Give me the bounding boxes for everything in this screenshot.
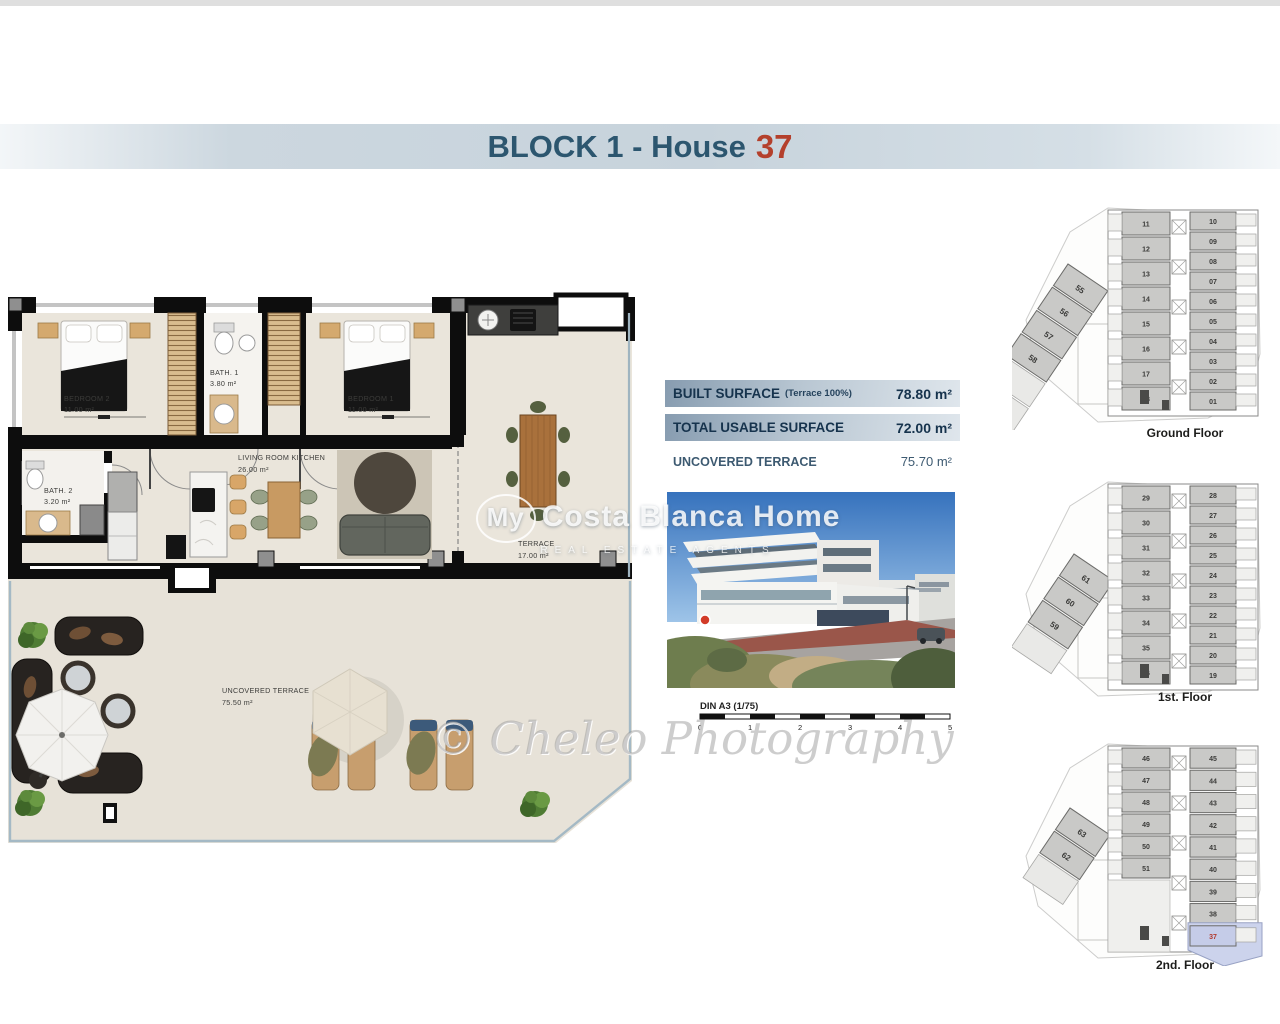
unit-number: 20 xyxy=(1209,653,1217,660)
svg-text:4: 4 xyxy=(898,723,902,732)
mini-floorplan-second: 6362454443424140393837464748495051 2nd. … xyxy=(1012,740,1268,990)
unit-number: 51 xyxy=(1142,866,1150,873)
unit-number: 41 xyxy=(1209,845,1217,852)
unit-number: 03 xyxy=(1209,359,1217,366)
unit-number: 06 xyxy=(1209,299,1217,306)
unit-number: 33 xyxy=(1142,596,1150,603)
unit-number: 09 xyxy=(1209,239,1217,246)
surface-table: BUILT SURFACE (Terrace 100%) 78.80 m² TO… xyxy=(665,380,960,482)
unit-number: 42 xyxy=(1209,823,1217,830)
unit-number: 46 xyxy=(1142,756,1150,763)
unit-number: 25 xyxy=(1209,553,1217,560)
room-label: UNCOVERED TERRACE xyxy=(222,686,309,695)
svg-text:3: 3 xyxy=(848,723,852,732)
mini-floor-label: Ground Floor xyxy=(1100,426,1270,440)
building-photo xyxy=(667,492,955,688)
scale-label: DIN A3 (1/75) xyxy=(700,701,758,712)
unit-number: 14 xyxy=(1142,297,1150,304)
unit-number: 15 xyxy=(1142,322,1150,329)
unit-number: 11 xyxy=(1142,222,1150,229)
mini-plan-svg: 5556575810090807060504030201111213141516… xyxy=(1012,204,1268,430)
unit-number: 22 xyxy=(1209,613,1217,620)
row-value: 72.00 m² xyxy=(896,420,952,436)
room-area: 11.00 m² xyxy=(348,405,379,414)
scale-bar: DIN A3 (1/75) 0 1 2 3 4 5 xyxy=(690,698,960,743)
unit-number: 05 xyxy=(1209,319,1217,326)
row-label: UNCOVERED TERRACE xyxy=(673,455,817,469)
table-row: TOTAL USABLE SURFACE 72.00 m² xyxy=(665,414,960,441)
mini-floor-label: 2nd. Floor xyxy=(1100,958,1270,972)
unit-number: 48 xyxy=(1142,800,1150,807)
unit-number: 50 xyxy=(1142,844,1150,851)
unit-number: 19 xyxy=(1209,673,1217,680)
unit-number: 40 xyxy=(1209,867,1217,874)
unit-number: 28 xyxy=(1209,493,1217,500)
room-label: BEDROOM 2 xyxy=(64,394,110,403)
unit-number: 16 xyxy=(1142,347,1150,354)
svg-text:1: 1 xyxy=(748,723,752,732)
unit-number: 12 xyxy=(1142,247,1150,254)
unit-number: 26 xyxy=(1209,533,1217,540)
scale-segments xyxy=(700,714,950,719)
unit-number: 23 xyxy=(1209,593,1217,600)
unit-number: 37 xyxy=(1209,934,1217,941)
main-floorplan: BEDROOM 2 11.00 m² BATH. 1 3.80 m² BEDRO… xyxy=(0,283,645,855)
unit-number: 07 xyxy=(1209,279,1217,286)
unit-number: 10 xyxy=(1209,219,1217,226)
unit-number: 43 xyxy=(1209,801,1217,808)
room-area: 11.00 m² xyxy=(64,405,95,414)
table-row: BUILT SURFACE (Terrace 100%) 78.80 m² xyxy=(665,380,960,407)
unit-number: 02 xyxy=(1209,379,1217,386)
unit-number: 47 xyxy=(1142,778,1150,785)
svg-text:2: 2 xyxy=(798,723,802,732)
unit-number: 17 xyxy=(1142,372,1150,379)
unit-number: 27 xyxy=(1209,513,1217,520)
unit-number: 29 xyxy=(1142,496,1150,503)
unit-number: 08 xyxy=(1209,259,1217,266)
unit-number: 38 xyxy=(1209,912,1217,919)
outdoor-lounge xyxy=(12,617,143,823)
unit-number: 49 xyxy=(1142,822,1150,829)
unit-number: 30 xyxy=(1142,521,1150,528)
wardrobe xyxy=(168,313,196,435)
page-title: BLOCK 1 - House xyxy=(487,129,745,165)
room-area: 3.80 m² xyxy=(210,379,237,388)
row-value: 75.70 m² xyxy=(901,454,952,469)
room-area: 17.00 m² xyxy=(518,551,549,560)
wardrobe xyxy=(268,313,300,405)
unit-number: 04 xyxy=(1209,339,1217,346)
unit-number: 13 xyxy=(1142,272,1150,279)
sofa-area xyxy=(337,450,432,559)
mini-floorplan-ground: 5556575810090807060504030201111213141516… xyxy=(1012,204,1268,454)
mini-plan-svg: 6362454443424140393837464748495051 xyxy=(1012,740,1268,966)
row-label: BUILT SURFACE xyxy=(673,386,780,401)
row-value: 78.80 m² xyxy=(896,386,952,402)
table-row: UNCOVERED TERRACE 75.70 m² xyxy=(665,448,960,475)
unit-number: 32 xyxy=(1142,571,1150,578)
room-area: 3.20 m² xyxy=(44,497,71,506)
svg-text:0: 0 xyxy=(698,723,702,732)
unit-number: 35 xyxy=(1142,646,1150,653)
top-border-strip xyxy=(0,0,1280,6)
lounger xyxy=(446,720,473,790)
unit-number: 34 xyxy=(1142,621,1150,628)
room-label: BATH. 2 xyxy=(44,486,73,495)
title-bar: BLOCK 1 - House 37 xyxy=(0,124,1280,169)
unit-number: 01 xyxy=(1209,399,1217,406)
room-label: BATH. 1 xyxy=(210,368,239,377)
outdoor-kitchen xyxy=(468,305,558,335)
mini-floorplan-first: 6160592827262524232221201929303132333435… xyxy=(1012,478,1268,728)
traffic-sign xyxy=(700,615,710,625)
plan-sheet: BLOCK 1 - House 37 xyxy=(0,0,1280,1024)
room-label: TERRACE xyxy=(518,539,554,548)
unit-number: 24 xyxy=(1209,573,1217,580)
unit-number: 39 xyxy=(1209,889,1217,896)
house-number: 37 xyxy=(756,128,793,166)
unit-number: 44 xyxy=(1209,778,1217,785)
unit-number: 21 xyxy=(1209,633,1217,640)
mini-plan-svg: 6160592827262524232221201929303132333435… xyxy=(1012,478,1268,704)
mini-floor-label: 1st. Floor xyxy=(1100,690,1270,704)
room-area: 75.50 m² xyxy=(222,698,253,707)
room-label: LIVING ROOM KITCHEN xyxy=(238,453,325,462)
unit-number: 45 xyxy=(1209,756,1217,763)
room-area: 26.00 m² xyxy=(238,465,269,474)
room-label: BEDROOM 1 xyxy=(348,394,394,403)
unit-number: 31 xyxy=(1142,546,1150,553)
row-note: (Terrace 100%) xyxy=(785,388,852,399)
svg-text:5: 5 xyxy=(948,723,952,732)
row-label: TOTAL USABLE SURFACE xyxy=(673,420,844,435)
